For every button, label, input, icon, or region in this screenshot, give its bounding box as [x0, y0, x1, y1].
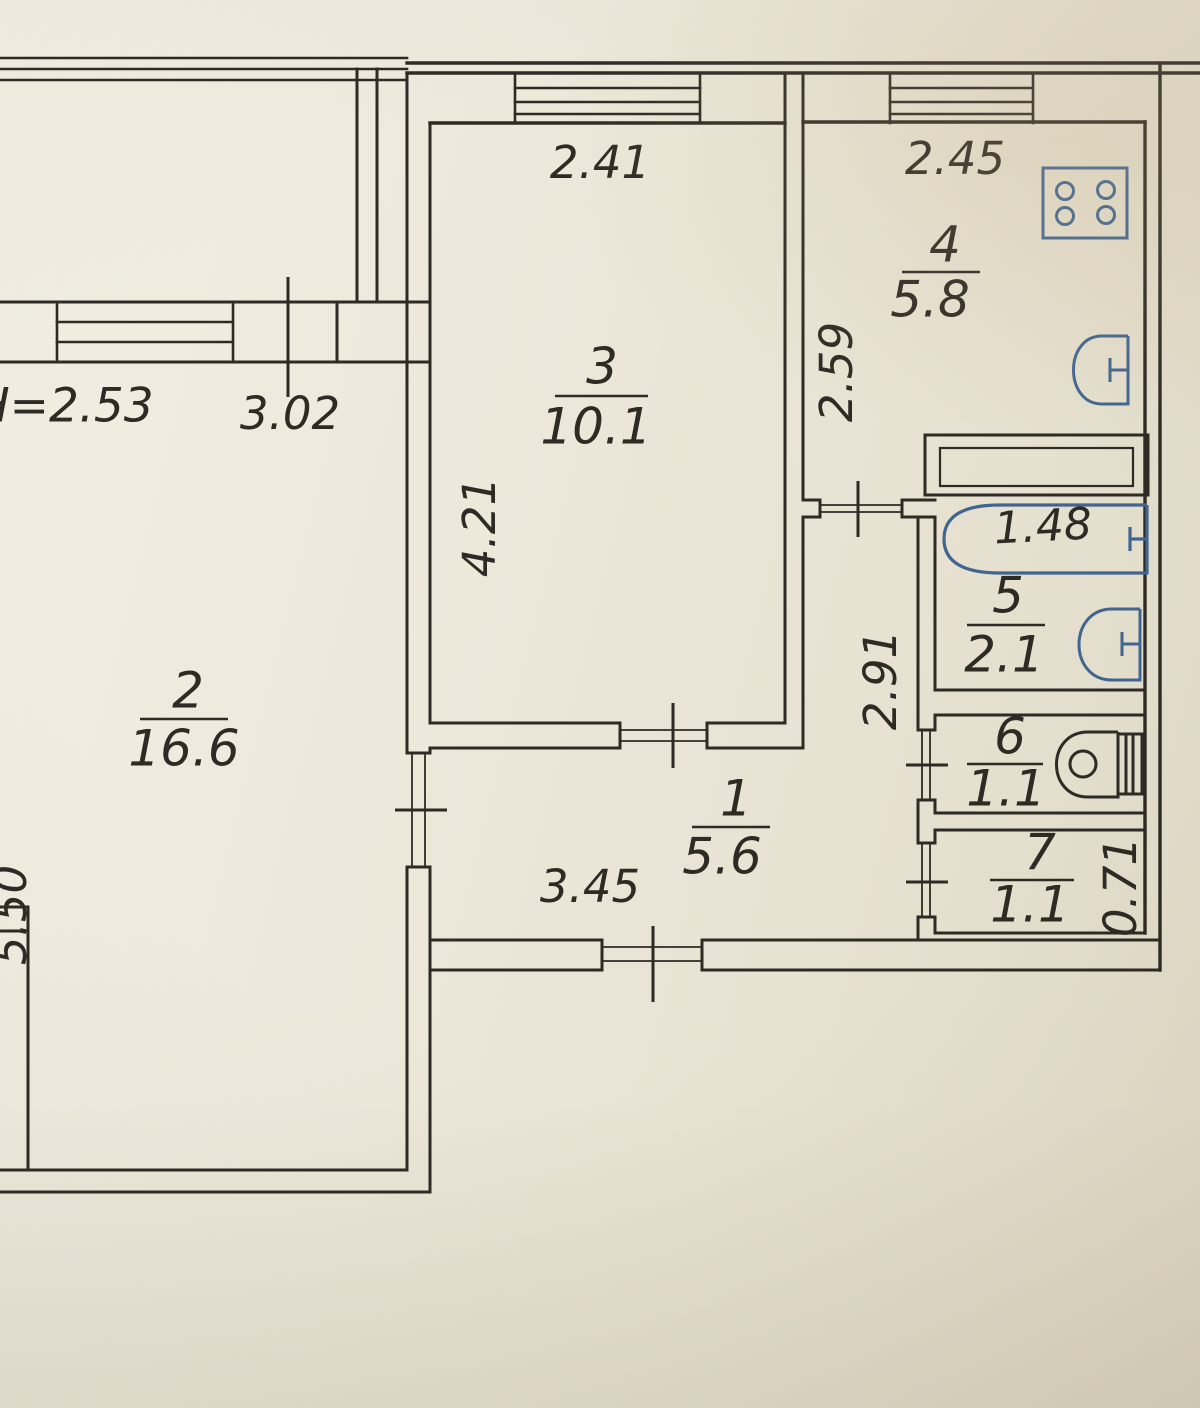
dim-room2-depth: 5.50: [0, 865, 37, 965]
room-1-label: 1 5.6: [682, 770, 762, 886]
room-3-area: 10.1: [540, 398, 651, 456]
room-7-label: 7 1.1: [990, 824, 1070, 934]
toilet-icon: [1057, 732, 1143, 797]
built-in-closet: [925, 435, 1148, 495]
room-6-area: 1.1: [966, 760, 1046, 818]
room-6-label: 6 1.1: [966, 708, 1046, 818]
dim-corridor-depth: 2.91: [854, 630, 907, 730]
room-4-number: 4: [929, 216, 961, 274]
room-3-number: 3: [586, 338, 618, 396]
room-2-area: 16.6: [128, 720, 239, 778]
room-5-label: 5 2.1: [964, 567, 1044, 684]
labels: H=2.53 2.41 2.45 3.02 4.21 2.59 2.91 1.4…: [0, 132, 1147, 965]
dim-bathtub-length: 1.48: [993, 498, 1094, 554]
room-7-area: 1.1: [990, 876, 1070, 934]
room-6-number: 6: [994, 708, 1026, 766]
room-4-area: 5.8: [890, 271, 970, 329]
stove-icon: [1043, 168, 1127, 238]
ceiling-height-note: H=2.53: [0, 379, 154, 434]
room-1-number: 1: [720, 770, 752, 828]
room-2-number: 2: [172, 662, 204, 720]
room-5-area: 2.1: [964, 626, 1044, 684]
dim-hall-width: 3.45: [540, 860, 640, 913]
dim-room7-depth: 0.71: [1094, 837, 1147, 937]
dim-room3-width: 2.41: [550, 136, 650, 189]
window-symbols: [57, 73, 1033, 362]
room-2-label: 2 16.6: [128, 662, 239, 778]
floor-plan-svg: H=2.53 2.41 2.45 3.02 4.21 2.59 2.91 1.4…: [0, 0, 1200, 1408]
dim-kitchen-width: 2.45: [905, 132, 1005, 185]
room-5-number: 5: [992, 567, 1024, 625]
room-7-number: 7: [1024, 824, 1056, 882]
room-1-area: 5.6: [682, 828, 762, 886]
dim-room2-width: 3.02: [240, 387, 340, 440]
kitchen-sink-icon: [1074, 336, 1129, 404]
dim-kitchen-depth: 2.59: [810, 322, 863, 422]
dim-room3-depth: 4.21: [453, 477, 506, 577]
scanned-floor-plan-page: H=2.53 2.41 2.45 3.02 4.21 2.59 2.91 1.4…: [0, 0, 1200, 1408]
room-4-label: 4 5.8: [890, 216, 970, 329]
washbasin-icon: [1079, 609, 1140, 680]
